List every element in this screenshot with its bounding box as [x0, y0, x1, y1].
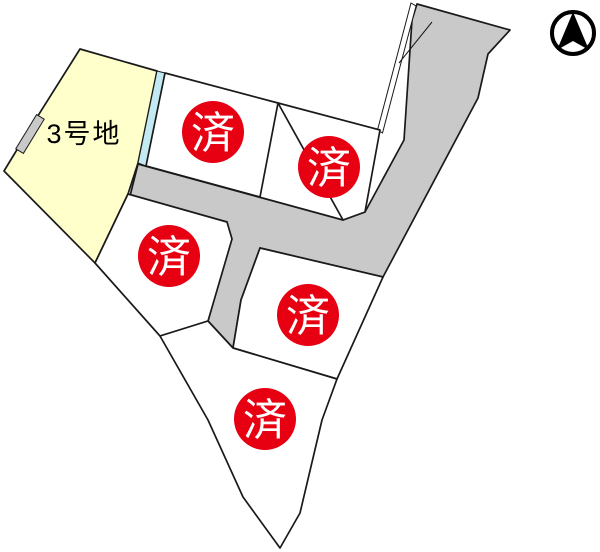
sold-badge: 済 — [277, 284, 339, 346]
north-compass-icon — [552, 12, 594, 54]
sold-badge-text: 済 — [147, 233, 191, 282]
lot-3-label: 3号地 — [46, 119, 121, 149]
sold-badge-text: 済 — [286, 292, 330, 341]
sold-badge: 済 — [138, 225, 200, 287]
sold-badge: 済 — [298, 136, 360, 198]
sold-badge: 済 — [234, 388, 296, 450]
site-plan-svg: 3号地 済 済 済 済 済 — [0, 0, 600, 552]
sold-badge-text: 済 — [307, 144, 351, 193]
sold-badge-text: 済 — [243, 396, 287, 445]
lot-subdivision-map: 3号地 済 済 済 済 済 — [0, 0, 600, 552]
sold-badge-text: 済 — [191, 109, 235, 158]
sold-badge: 済 — [182, 101, 244, 163]
